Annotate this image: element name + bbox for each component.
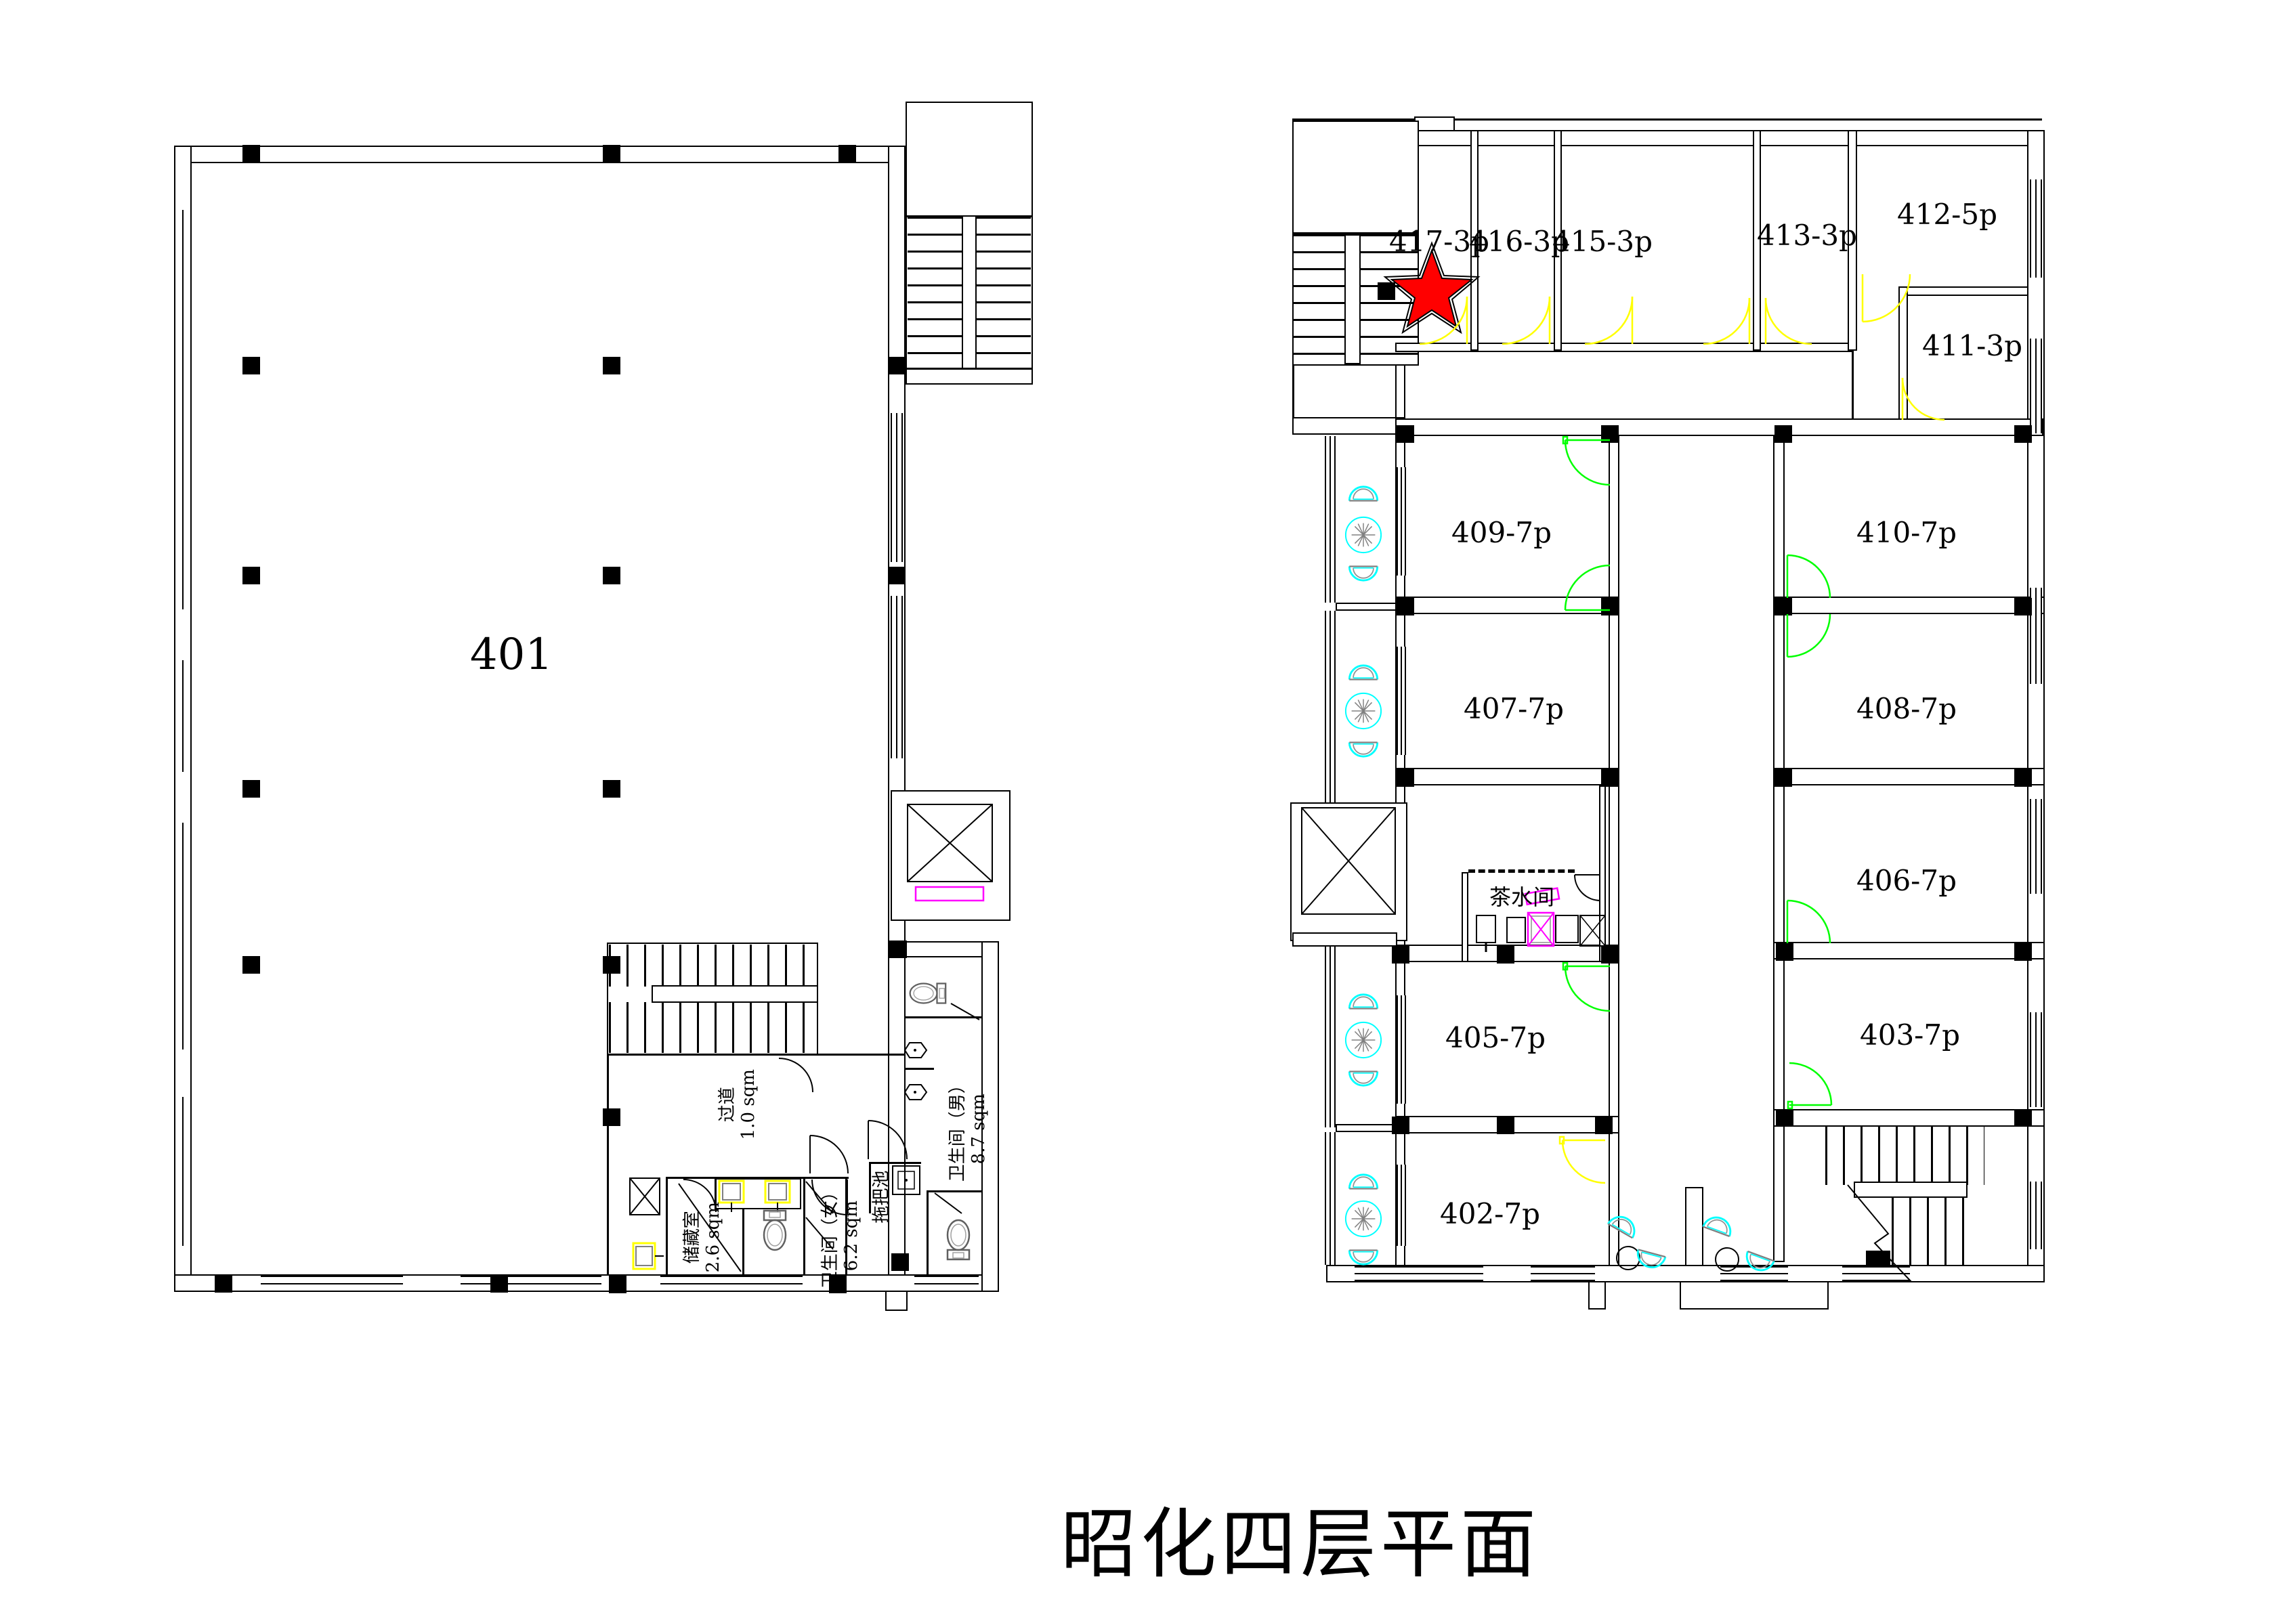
entry-stoop: [1680, 1281, 1829, 1310]
elevator-shaft: [1290, 802, 1407, 941]
room-label-405: 405-7p: [1438, 1021, 1553, 1054]
drawing-title: 昭化四层平面图: [1023, 1483, 1578, 1600]
label-mop-sink: 拖把池: [871, 1096, 892, 1299]
column: [1392, 1117, 1409, 1134]
label-corridor-area: 1.0 sqm: [738, 1003, 759, 1206]
tea-room-label: 茶水间: [1447, 880, 1596, 911]
column: [1774, 425, 1792, 443]
column: [242, 780, 260, 798]
balcony-window: [1325, 947, 1336, 1127]
column: [889, 940, 907, 958]
window: [1397, 1165, 1406, 1246]
stair-rail: [1854, 1182, 1968, 1198]
room-label-411: 411-3p: [1915, 329, 2030, 362]
window: [174, 1097, 192, 1246]
column: [2014, 769, 2032, 787]
column: [1397, 425, 1414, 443]
column: [1397, 598, 1414, 615]
wall-tea-right: [1599, 785, 1606, 962]
wall-right-plan-top: [1395, 130, 2042, 146]
label-mop-sink-name: 拖把池: [871, 1096, 892, 1299]
elevator-sill: [1292, 932, 1397, 947]
column: [490, 1275, 508, 1293]
column: [1601, 598, 1619, 615]
column: [1378, 282, 1395, 300]
wall-409-407: [1395, 597, 1619, 614]
room-label-401: 401: [437, 630, 586, 680]
window: [1397, 467, 1406, 576]
wall-408-406: [1773, 768, 2045, 785]
window: [1397, 995, 1406, 1104]
column: [2014, 1109, 2032, 1127]
toilet-icon: [764, 1211, 786, 1250]
wall: [906, 1016, 983, 1018]
room-label-409: 409-7p: [1444, 516, 1559, 549]
window: [1397, 647, 1406, 755]
toilet-icon: [910, 984, 946, 1003]
window: [1842, 1266, 1910, 1281]
urinal-icon: [905, 1085, 927, 1100]
column: [1595, 1117, 1613, 1134]
label-wc-women-name: 卫生间（女）: [820, 1134, 841, 1337]
balcony-divider: [1336, 1124, 1397, 1132]
wall-rooms-right: [1609, 436, 1619, 1266]
entry-stoop: [1588, 1281, 1606, 1310]
stair-landing-line: [906, 368, 1033, 370]
column: [888, 567, 906, 584]
room-label-403: 403-7p: [1852, 1018, 1968, 1052]
column: [603, 780, 620, 798]
column: [1601, 946, 1619, 964]
column: [838, 145, 856, 163]
column: [603, 956, 620, 974]
column: [603, 145, 620, 163]
window: [2030, 1012, 2042, 1107]
window: [891, 596, 903, 758]
window: [174, 660, 192, 772]
room-label-415: 415-3p: [1545, 225, 1660, 258]
sink: [633, 1243, 664, 1269]
wall-410-408: [1773, 597, 2045, 614]
column: [1601, 425, 1619, 443]
window: [1720, 1266, 1788, 1281]
label-wc-men-name: 卫生间（男）: [948, 1027, 969, 1230]
label-storage-name: 储藏室: [682, 1136, 703, 1339]
stair-post: [1866, 1251, 1890, 1267]
column: [242, 956, 260, 974]
window: [261, 1276, 403, 1292]
column: [1392, 946, 1409, 964]
room-label-413: 413-3p: [1749, 219, 1865, 252]
urinal-screen: [906, 1068, 934, 1070]
floor-plan-canvas: 401 417-3p 416-3p 415-3p 413-3p 412-5p 4…: [0, 0, 2296, 1600]
window: [461, 1276, 601, 1292]
window: [1531, 1266, 1595, 1281]
room-label-407: 407-7p: [1456, 692, 1571, 725]
column: [1601, 769, 1619, 787]
column: [603, 1108, 620, 1126]
column: [1497, 946, 1514, 964]
wall-corridor-bottom: [1292, 417, 1405, 435]
wall-403-stair: [1773, 1109, 2045, 1127]
label-wc-men: 卫生间（男） 8.7 sqm: [948, 1027, 990, 1230]
label-storage: 储藏室 2.6 sqm: [682, 1136, 724, 1339]
window: [2030, 799, 2042, 894]
room-label-412: 412-5p: [1890, 198, 2005, 231]
column: [891, 1253, 909, 1271]
staircase-steps: [609, 945, 816, 987]
column: [603, 357, 620, 374]
room-label-406: 406-7p: [1849, 864, 1964, 897]
wall: [927, 1190, 929, 1276]
label-storage-area: 2.6 sqm: [703, 1136, 724, 1339]
stair-divider: [1344, 234, 1361, 364]
elevator-shaft: [891, 790, 1011, 921]
room-label-408: 408-7p: [1849, 692, 1964, 725]
staircase-steps: [609, 1002, 816, 1053]
column: [609, 1276, 626, 1293]
column: [1397, 769, 1414, 787]
balcony-window: [1325, 611, 1336, 802]
column: [242, 567, 260, 584]
shaft-x-box: [630, 1178, 660, 1215]
wall-rooms2-left: [1773, 436, 1785, 1262]
wall: [666, 1177, 668, 1276]
window: [2030, 339, 2042, 433]
column: [242, 357, 260, 374]
column: [215, 1275, 232, 1293]
wall-left-plan-top: [174, 146, 906, 163]
column: [1776, 1109, 1793, 1127]
wall-corridor-row: [1395, 418, 2043, 436]
balcony-window: [1325, 436, 1336, 603]
column: [1774, 769, 1792, 787]
balcony-window: [1325, 1132, 1336, 1265]
window: [2030, 179, 2042, 278]
tea-room-dashed-front: [1468, 869, 1575, 873]
wall-407-tea: [1395, 768, 1619, 785]
label-wc-men-area: 8.7 sqm: [969, 1027, 990, 1230]
wall-411-top: [1898, 286, 2028, 296]
window: [174, 210, 192, 609]
column: [1774, 598, 1792, 615]
stair-rail: [652, 985, 818, 1003]
window: [891, 413, 903, 562]
column: [1497, 1117, 1514, 1134]
wall-411-left: [1898, 286, 1908, 430]
label-wc-women: 卫生间（女） 6.2 sqm: [820, 1134, 862, 1337]
column: [888, 357, 906, 374]
wall-top-rooms-bottom: [1395, 343, 1852, 352]
column: [2014, 598, 2032, 615]
room-label-402: 402-7p: [1432, 1197, 1548, 1230]
window: [1355, 1266, 1483, 1281]
column: [2014, 425, 2032, 443]
wall: [607, 1054, 609, 1276]
column: [242, 145, 260, 163]
label-wc-women-area: 6.2 sqm: [841, 1134, 862, 1337]
annotation-overlay: [0, 0, 2296, 1600]
wall: [1852, 351, 1854, 428]
window: [2030, 1182, 2042, 1249]
staircase-steps: [1892, 1198, 1968, 1265]
column: [603, 567, 620, 584]
stair-divider: [962, 215, 977, 370]
wall-406-403: [1773, 942, 2045, 959]
room-label-410: 410-7p: [1849, 516, 1964, 549]
urinal-icon: [905, 1043, 927, 1058]
column: [2014, 943, 2032, 961]
wall-alcove: [1685, 1187, 1703, 1266]
window: [174, 823, 192, 1050]
wall: [803, 1177, 805, 1276]
column: [1776, 943, 1793, 961]
balcony-divider: [1336, 603, 1397, 611]
window: [914, 1276, 979, 1292]
staircase-steps: [1825, 1127, 1984, 1185]
